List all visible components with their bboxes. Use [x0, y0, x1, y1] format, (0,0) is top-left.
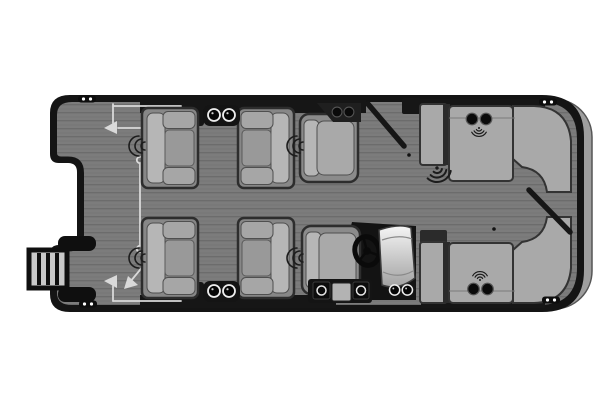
gate-latch-dot — [492, 227, 496, 231]
companion-chair — [300, 114, 358, 182]
chaise-lounge-bow-starboard-left — [142, 218, 198, 298]
helm-footrest-group — [308, 279, 372, 303]
cleat — [542, 297, 560, 304]
gate-latch-dot — [407, 153, 411, 157]
cup-holders-bow-top — [203, 105, 240, 126]
pontoon-floor-plan — [0, 0, 611, 407]
cleat — [79, 301, 97, 308]
cooler-box — [332, 283, 351, 301]
speaker-cone-icon — [357, 286, 366, 295]
cleat — [78, 96, 96, 103]
cleat — [539, 99, 557, 106]
windshield — [379, 226, 415, 287]
cup-holders-bow-bottom — [203, 281, 240, 302]
chaise-lounge-bow-port-left — [142, 108, 198, 188]
chaise-lounge-bow-starboard-right — [238, 218, 294, 298]
floor-plan-canvas — [0, 0, 611, 407]
speaker-cone-icon — [317, 286, 326, 295]
chaise-lounge-bow-port-right — [238, 108, 294, 188]
